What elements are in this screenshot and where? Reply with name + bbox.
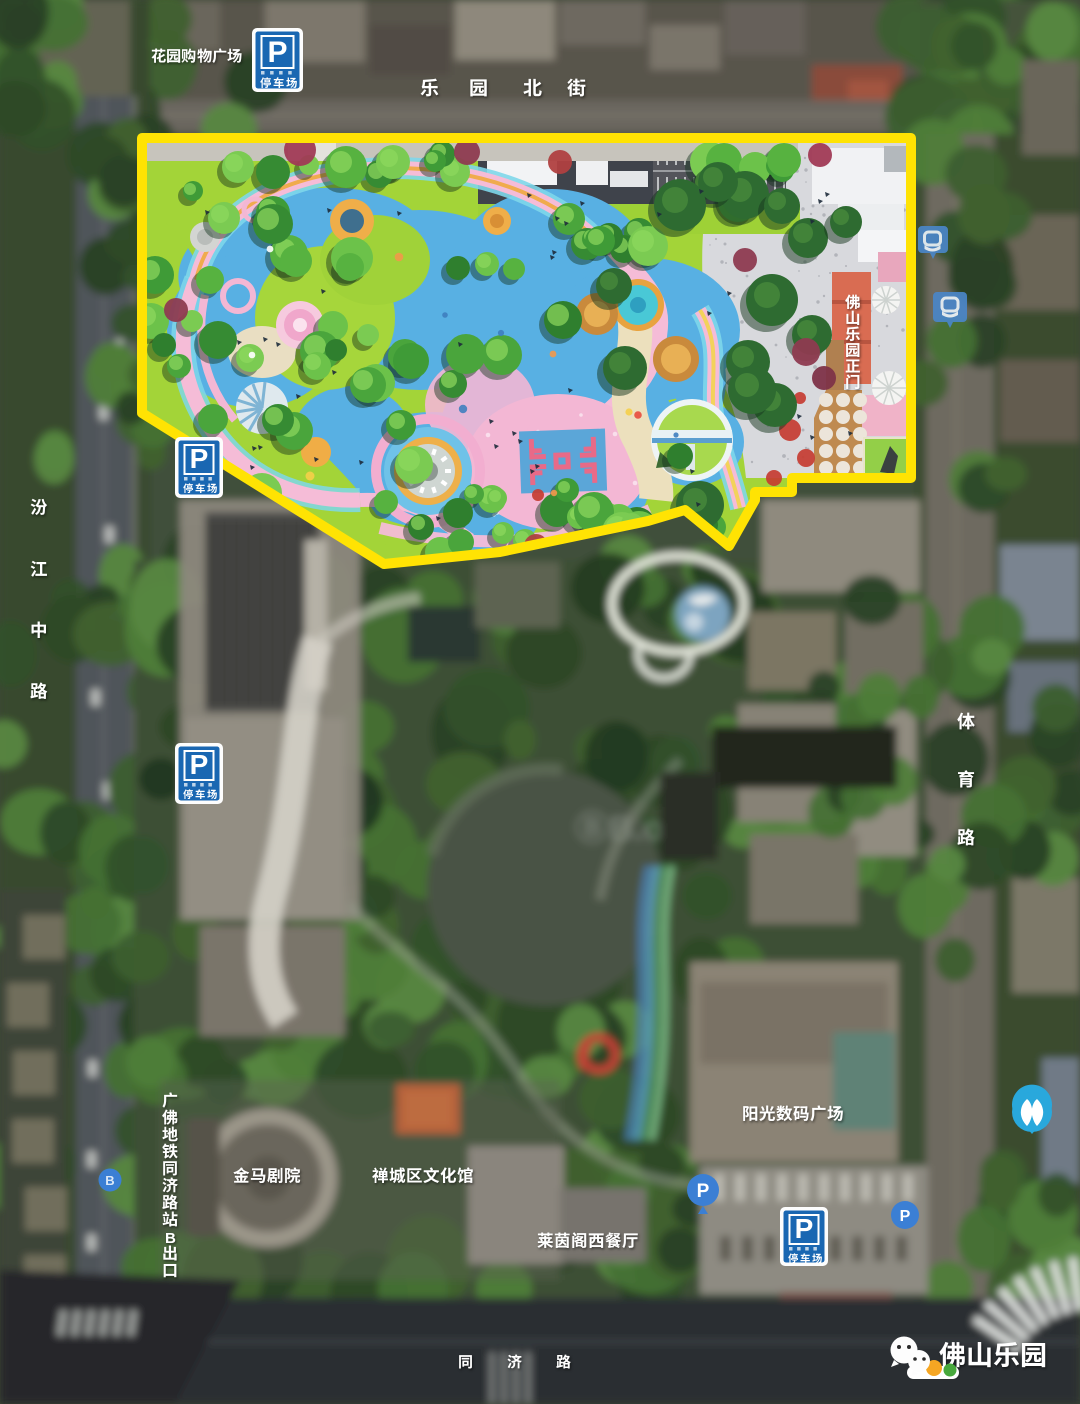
svg-text:P: P [190, 443, 209, 474]
svg-text:P: P [697, 1181, 710, 1202]
svg-text:B: B [105, 1173, 114, 1188]
svg-text:P: P [795, 1213, 814, 1244]
svg-text:P: P [900, 1208, 911, 1225]
svg-text:P: P [190, 749, 209, 780]
svg-text:B: B [165, 1230, 176, 1247]
svg-text:P: P [267, 36, 287, 69]
